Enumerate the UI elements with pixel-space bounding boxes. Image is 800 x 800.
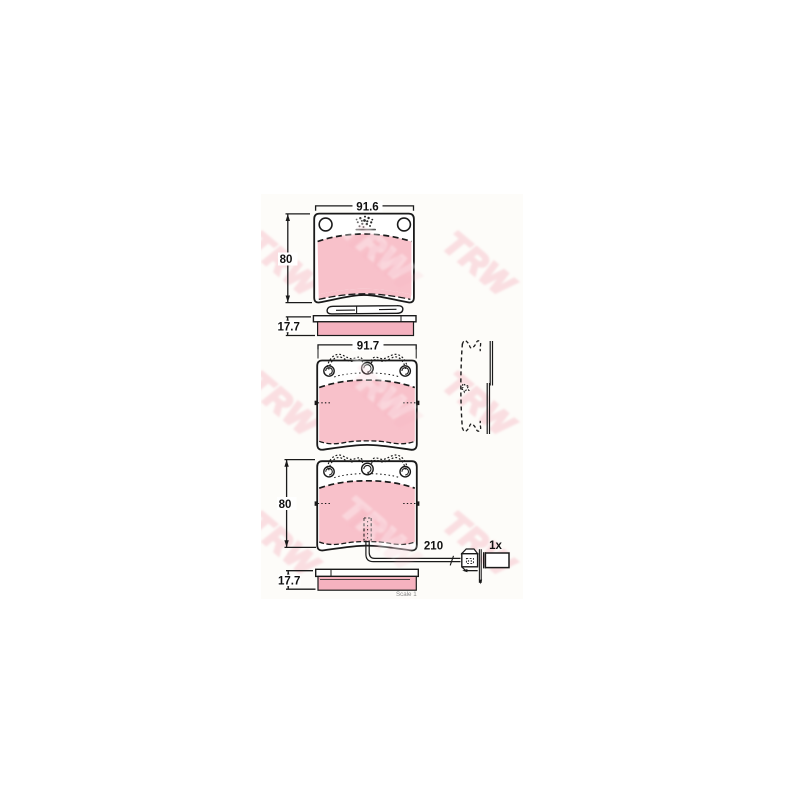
svg-text:80: 80 <box>279 499 292 511</box>
svg-text:1x: 1x <box>489 540 502 552</box>
svg-text:210: 210 <box>424 541 443 553</box>
svg-text:80: 80 <box>280 254 293 266</box>
svg-text:17.7: 17.7 <box>278 575 300 587</box>
svg-text:17.7: 17.7 <box>278 322 300 334</box>
svg-text:Scale 1: Scale 1 <box>396 591 417 598</box>
